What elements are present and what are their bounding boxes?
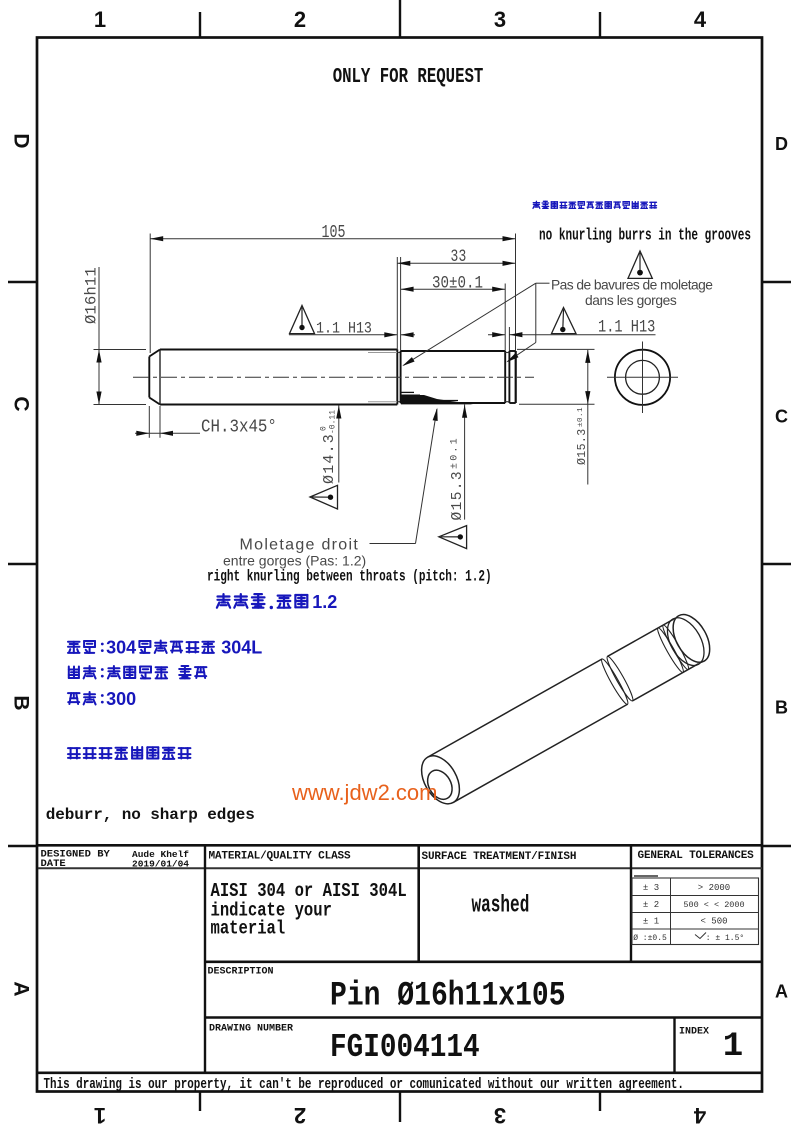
svg-text:FGI004114: FGI004114 xyxy=(330,1030,480,1067)
svg-text:1.2: 1.2 xyxy=(312,592,337,612)
svg-text:1.1 H13: 1.1 H13 xyxy=(598,317,655,337)
svg-text:deburr, no sharp edges: deburr, no sharp edges xyxy=(46,806,255,824)
svg-text:right knurling between throats: right knurling between throats (pitch: 1… xyxy=(207,568,492,587)
svg-text:± 2: ± 2 xyxy=(643,900,659,910)
svg-text:D: D xyxy=(775,134,788,154)
svg-text:MATERIAL/QUALITY CLASS: MATERIAL/QUALITY CLASS xyxy=(209,851,351,863)
svg-text:dans les gorges: dans les gorges xyxy=(585,293,677,308)
svg-text:304L: 304L xyxy=(221,638,262,658)
svg-text:no knurling burrs in the groov: no knurling burrs in the grooves xyxy=(539,226,751,245)
svg-text:105: 105 xyxy=(322,222,346,243)
svg-text:Ø16h11: Ø16h11 xyxy=(83,267,101,324)
svg-text:2: 2 xyxy=(294,1103,306,1128)
svg-text:This drawing is our property,: This drawing is our property, it can't b… xyxy=(44,1075,684,1092)
svg-text:300: 300 xyxy=(106,689,136,709)
svg-text:Moletage droit: Moletage droit xyxy=(240,537,360,554)
svg-text:30±0.1: 30±0.1 xyxy=(432,273,483,293)
svg-text:SURFACE TREATMENT/FINISH: SURFACE TREATMENT/FINISH xyxy=(422,851,577,863)
svg-text:CH.3x45°: CH.3x45° xyxy=(201,418,277,438)
svg-text:C: C xyxy=(10,396,33,411)
svg-text:500 < < 2000: 500 < < 2000 xyxy=(683,900,744,910)
svg-text:A: A xyxy=(775,982,788,1002)
svg-text:washed: washed xyxy=(472,893,530,920)
svg-text:Pin Ø16h11x105: Pin Ø16h11x105 xyxy=(330,977,566,1015)
svg-text:D: D xyxy=(10,133,33,148)
svg-text:GENERAL TOLERANCES: GENERAL TOLERANCES xyxy=(638,850,755,862)
svg-text:Pas de bavures de moletage: Pas de bavures de moletage xyxy=(551,278,713,293)
svg-text:DATE: DATE xyxy=(41,858,66,870)
svg-text:± 1: ± 1 xyxy=(643,917,659,927)
svg-text:material: material xyxy=(211,919,286,940)
svg-text:Ø15.3: Ø15.3 xyxy=(450,470,466,521)
svg-text:0: 0 xyxy=(320,426,329,431)
svg-text:INDEX: INDEX xyxy=(679,1027,709,1038)
svg-text:ONLY FOR REQUEST: ONLY FOR REQUEST xyxy=(333,64,484,89)
svg-text:DRAWING NUMBER: DRAWING NUMBER xyxy=(209,1024,293,1035)
svg-text:1: 1 xyxy=(94,1103,106,1128)
svg-text:< 500: < 500 xyxy=(700,917,727,927)
svg-text:4: 4 xyxy=(693,1103,706,1128)
svg-text:1: 1 xyxy=(723,1028,743,1066)
svg-text:2019/01/04: 2019/01/04 xyxy=(132,859,189,870)
svg-text:±0.1: ±0.1 xyxy=(450,436,461,469)
svg-text:-0.11: -0.11 xyxy=(329,410,338,434)
svg-text:304: 304 xyxy=(106,638,136,658)
svg-text:4: 4 xyxy=(694,7,707,32)
svg-text:B: B xyxy=(775,698,788,718)
svg-text:1.1 H13: 1.1 H13 xyxy=(316,321,372,338)
svg-text:AISI 304 or AISI 304L: AISI 304 or AISI 304L xyxy=(211,882,407,903)
svg-text:Ø :±0.5: Ø :±0.5 xyxy=(633,934,667,943)
svg-text:±0.1: ±0.1 xyxy=(577,407,585,427)
svg-text:www.jdw2.com: www.jdw2.com xyxy=(291,780,437,805)
svg-text:2: 2 xyxy=(294,7,306,32)
svg-text:3: 3 xyxy=(494,7,506,32)
svg-text:A: A xyxy=(10,981,33,996)
svg-text:> 2000: > 2000 xyxy=(698,883,730,893)
svg-text:DESCRIPTION: DESCRIPTION xyxy=(208,967,274,978)
svg-text:33: 33 xyxy=(450,246,466,267)
svg-text:B: B xyxy=(10,695,33,710)
svg-text:Ø14.3: Ø14.3 xyxy=(321,433,338,484)
svg-text:Ø15.3: Ø15.3 xyxy=(576,428,589,465)
svg-text:: ± 1.5°: : ± 1.5° xyxy=(706,934,744,943)
svg-text:3: 3 xyxy=(494,1103,506,1128)
svg-text:C: C xyxy=(775,407,788,427)
svg-text:± 3: ± 3 xyxy=(643,883,659,893)
svg-text:1: 1 xyxy=(94,7,106,32)
svg-text:entre gorges (Pas: 1.2): entre gorges (Pas: 1.2) xyxy=(223,553,366,569)
